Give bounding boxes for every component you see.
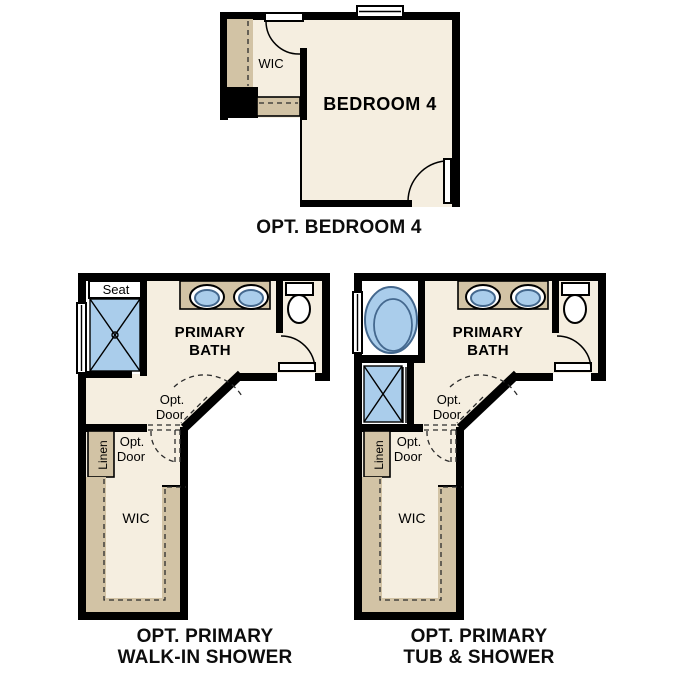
walk-in-shower-caption-line1: OPT. PRIMARY [75,626,335,647]
plan-bedroom4: WIC BEDROOM 4 [213,3,465,213]
walk-in-shower-caption: OPT. PRIMARY WALK-IN SHOWER [75,626,335,668]
wic-label: WIC [122,510,149,526]
primary-bath-label-line1: PRIMARY [175,324,246,341]
sink-icon [511,285,545,309]
walk-in-shower-caption-line2: WALK-IN SHOWER [75,647,335,668]
bedroom4-caption: OPT. BEDROOM 4 [213,217,465,238]
wic-label: WIC [398,510,425,526]
plan-walk-in-shower: Seat PRIMARY BATH Opt. Door Opt. Door Li… [75,270,335,625]
sink-icon [466,285,500,309]
floor-plan-sheet: WIC BEDROOM 4 OPT. BEDROOM 4 [0,0,687,687]
linen-label: Linen [372,440,386,469]
tub-shower-caption-line2: TUB & SHOWER [348,647,610,668]
ts-shower-fixture [364,366,406,423]
wic-label: WIC [258,56,283,71]
primary-bath-label-line2: BATH [189,342,231,359]
opt-door-lower-label-line1: Opt. [120,434,145,449]
opt-door-upper-label-line2: Door [433,407,462,422]
opt-door-upper-label-line1: Opt. [437,392,462,407]
seat-label: Seat [103,282,130,297]
tub-shower-caption: OPT. PRIMARY TUB & SHOWER [348,626,610,668]
tub-fixture [365,287,417,353]
primary-bath-label-line1: PRIMARY [453,324,524,341]
primary-bath-label-line2: BATH [467,342,509,359]
opt-door-upper-label-line2: Door [156,407,185,422]
opt-door-lower-label-line1: Opt. [397,434,422,449]
structural-column [220,87,258,118]
opt-door-upper-label-line1: Opt. [160,392,185,407]
linen-label: Linen [96,440,110,469]
opt-door-lower-label-line2: Door [117,449,146,464]
bedroom4-label: BEDROOM 4 [323,94,437,114]
wis-vanity [180,281,270,309]
opt-door-lower-label-line2: Door [394,449,423,464]
sink-icon [190,285,224,309]
toilet-icon [286,283,313,323]
toilet-icon [562,283,589,323]
sink-icon [234,285,268,309]
tub-shower-caption-line1: OPT. PRIMARY [348,626,610,647]
ts-vanity [458,281,548,309]
plan-tub-shower: PRIMARY BATH Opt. Door Opt. Door Linen W… [348,270,610,625]
